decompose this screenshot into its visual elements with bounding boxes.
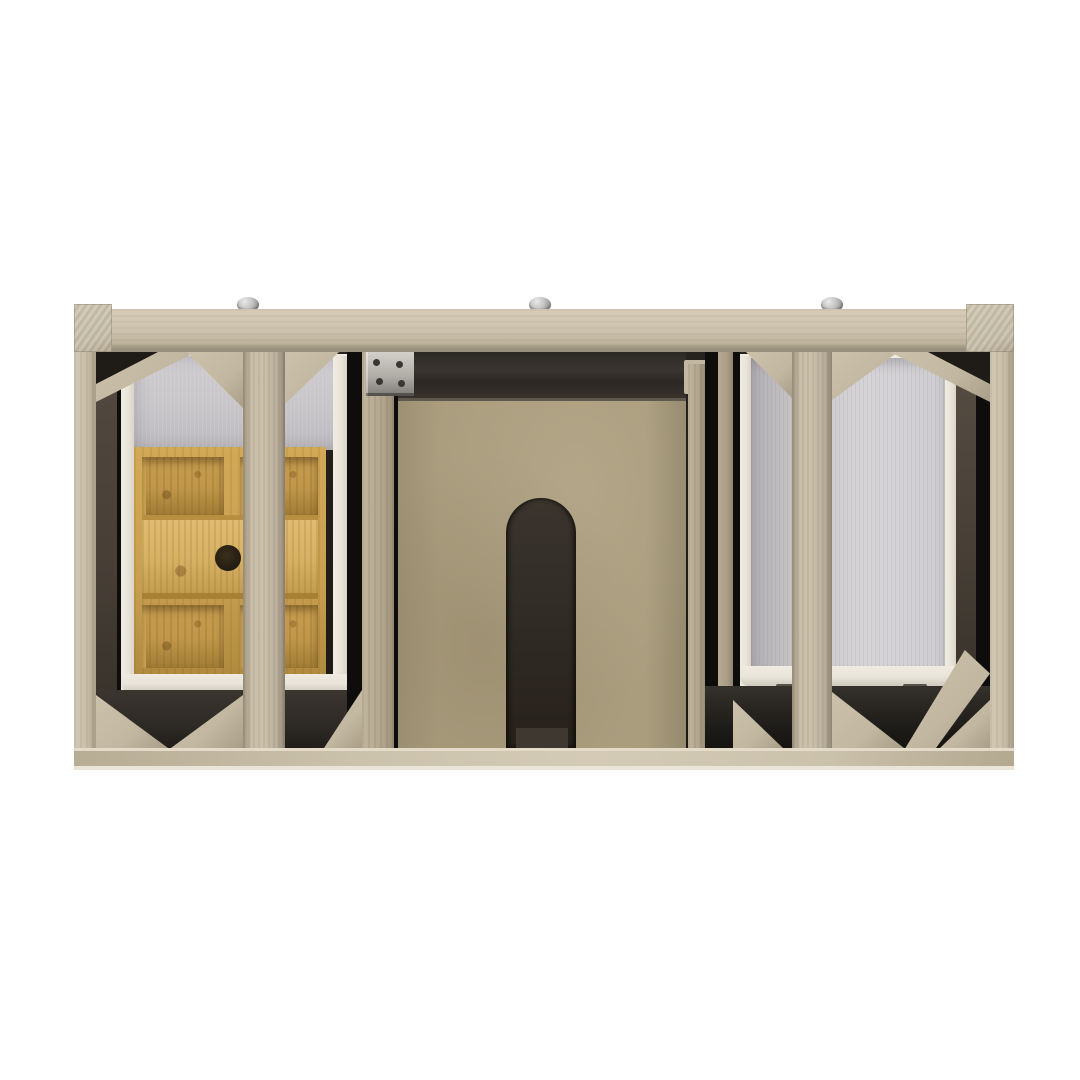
bottom-rail [74,748,1014,770]
arch-cutout-ledge [516,728,568,748]
right-side-panel-interior [956,352,976,690]
left-side-panel-interior [96,352,118,748]
corner-cap-right [966,304,1014,352]
right-drawer-side [945,356,956,686]
corner-cap-left [74,304,112,352]
left-post [74,306,96,752]
organizer-compartment [142,605,224,668]
bracket-hole [396,361,403,368]
center-divider-wall [362,352,396,748]
right-post [990,306,1014,752]
organizer-compartment [142,457,224,515]
bracket-hole [376,378,383,385]
interior-back-shadow [398,352,686,402]
finger-hole [215,545,241,571]
face-frame-stile-left [243,352,285,748]
shadow-gap [347,352,362,748]
face-frame-stile-right [792,352,832,748]
product-photo-vanity-underside [0,0,1080,1080]
right-drawer-bottom-panel [751,358,945,668]
top-rail [74,309,1014,352]
left-drawer-side [333,356,347,690]
arch-cutout [506,498,576,748]
bracket-hole [398,380,405,387]
right-drawer-front-edge [740,666,956,686]
right-drawer-side [740,356,751,686]
bracket-hole [373,359,380,366]
center-divider-wall [688,364,705,748]
drawer-slide-bracket [366,352,414,396]
left-drawer-side [121,356,134,690]
